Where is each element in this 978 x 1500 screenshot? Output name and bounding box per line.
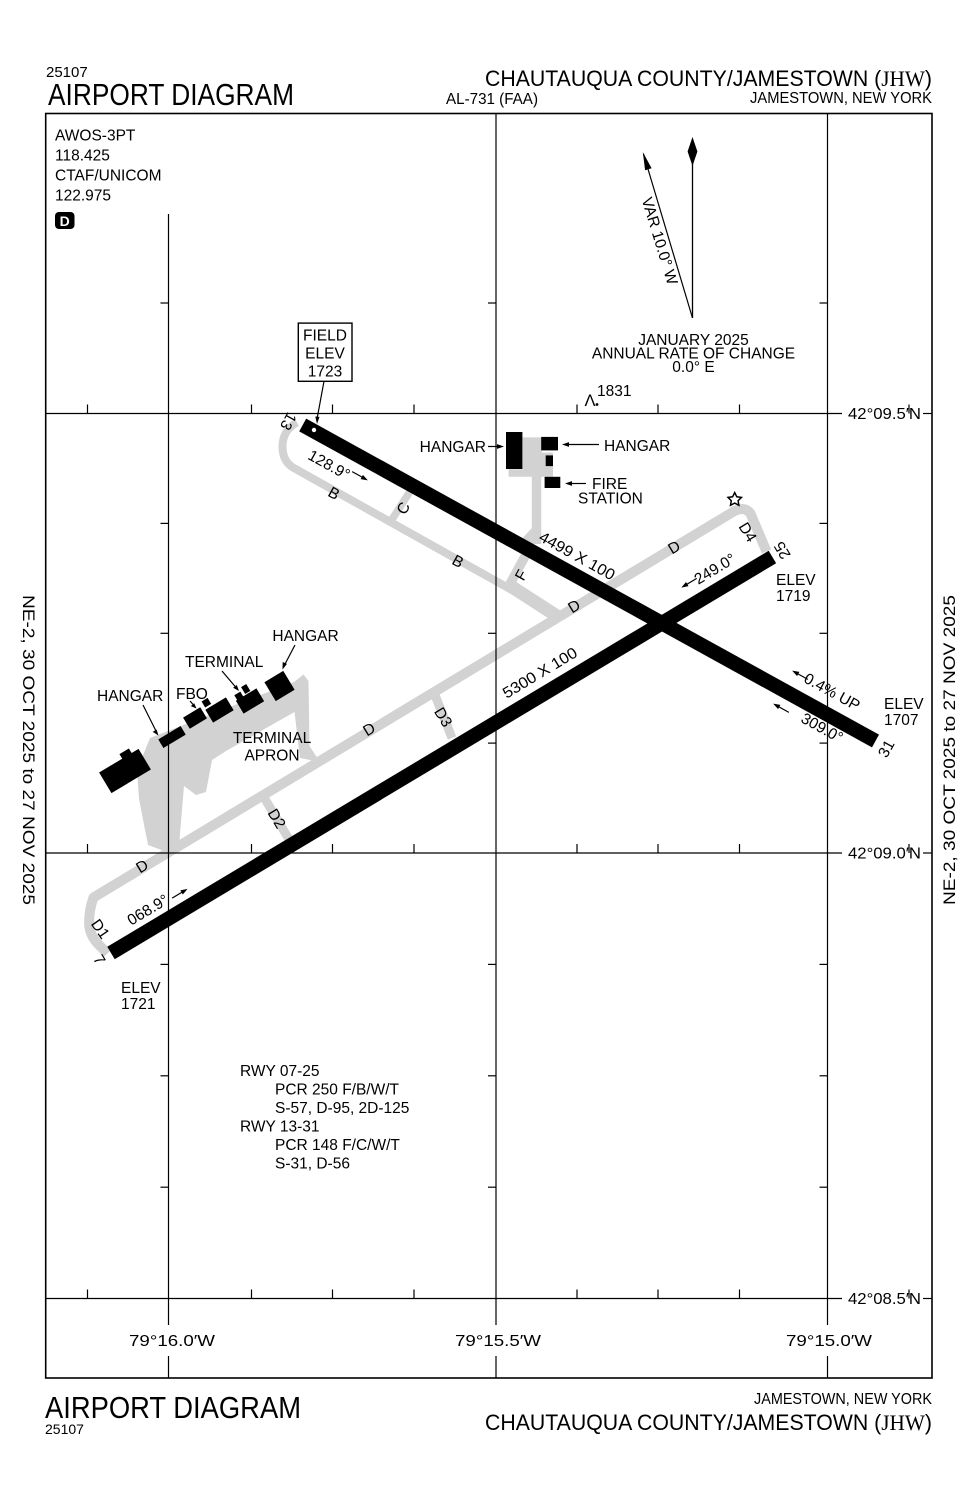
svg-text:CHAUTAUQUA COUNTY/JAMESTOWN (J: CHAUTAUQUA COUNTY/JAMESTOWN (JHW) xyxy=(485,66,932,91)
svg-text:RWY 07-25: RWY 07-25 xyxy=(240,1063,320,1080)
svg-text:VAR 10.0° W: VAR 10.0° W xyxy=(638,195,681,287)
svg-text:HANGAR: HANGAR xyxy=(604,438,670,455)
svg-text:PCR 148 F/C/W/T: PCR 148 F/C/W/T xyxy=(275,1137,400,1154)
svg-text:FIELD: FIELD xyxy=(303,328,347,345)
svg-text:25107: 25107 xyxy=(45,1421,84,1437)
svg-text:79°15.5′W: 79°15.5′W xyxy=(455,1333,541,1350)
svg-text:1707: 1707 xyxy=(884,712,918,729)
svg-text:1723: 1723 xyxy=(308,364,342,381)
svg-text:42°08.5′N: 42°08.5′N xyxy=(848,1291,921,1308)
svg-text:79°15.0′W: 79°15.0′W xyxy=(786,1333,872,1350)
svg-text:HANGAR: HANGAR xyxy=(272,628,338,645)
svg-text:42°09.5′N: 42°09.5′N xyxy=(848,406,921,423)
svg-text:S-31, D-56: S-31, D-56 xyxy=(275,1156,350,1173)
svg-text:FBO: FBO xyxy=(176,686,208,703)
svg-text:AL-731 (FAA): AL-731 (FAA) xyxy=(446,91,538,108)
svg-text:118.425: 118.425 xyxy=(55,148,110,165)
svg-text:79°16.0′W: 79°16.0′W xyxy=(129,1333,215,1350)
svg-text:S-57, D-95, 2D-125: S-57, D-95, 2D-125 xyxy=(275,1100,409,1117)
svg-text:13: 13 xyxy=(276,409,299,432)
svg-text:TERMINAL: TERMINAL xyxy=(185,654,264,671)
svg-text:HANGAR: HANGAR xyxy=(420,439,486,456)
svg-text:AIRPORT DIAGRAM: AIRPORT DIAGRAM xyxy=(45,1390,301,1425)
svg-text:ELEV: ELEV xyxy=(884,696,924,713)
svg-text:RWY 13-31: RWY 13-31 xyxy=(240,1119,320,1136)
svg-text:NE-2, 30 OCT 2025 to 27 NOV: NE-2, 30 OCT 2025 to 27 NOV 2025 xyxy=(19,595,38,905)
svg-text:7: 7 xyxy=(89,952,108,968)
svg-text:AIRPORT DIAGRAM: AIRPORT DIAGRAM xyxy=(48,77,294,112)
svg-text:JAMESTOWN, NEW YORK: JAMESTOWN, NEW YORK xyxy=(754,1391,933,1408)
svg-text:NE-2, 30 OCT 2025 to 27 NOV: NE-2, 30 OCT 2025 to 27 NOV 2025 xyxy=(940,595,959,905)
svg-text:ELEV: ELEV xyxy=(305,346,345,363)
svg-text:1719: 1719 xyxy=(776,588,810,605)
svg-text:25: 25 xyxy=(771,538,794,562)
svg-text:APRON: APRON xyxy=(244,748,299,765)
svg-text:D: D xyxy=(60,213,70,229)
svg-text:TERMINAL: TERMINAL xyxy=(233,730,312,747)
svg-text:31: 31 xyxy=(875,737,898,760)
svg-text:ELEV: ELEV xyxy=(776,572,816,589)
svg-text:STATION: STATION xyxy=(578,491,643,508)
svg-text:AWOS-3PT: AWOS-3PT xyxy=(55,128,136,145)
svg-text:0.0° E: 0.0° E xyxy=(672,359,714,376)
svg-text:1721: 1721 xyxy=(121,996,155,1013)
svg-text:JAMESTOWN, NEW YORK: JAMESTOWN, NEW YORK xyxy=(750,90,933,107)
svg-text:CHAUTAUQUA COUNTY/JAMESTOWN (J: CHAUTAUQUA COUNTY/JAMESTOWN (JHW) xyxy=(485,1410,932,1435)
svg-text:Λ: Λ xyxy=(585,392,596,410)
svg-text:1831: 1831 xyxy=(597,383,631,400)
svg-text:122.975: 122.975 xyxy=(55,188,111,205)
svg-text:CTAF/UNICOM: CTAF/UNICOM xyxy=(55,168,161,185)
svg-text:HANGAR: HANGAR xyxy=(97,688,163,705)
svg-text:42°09.0′N: 42°09.0′N xyxy=(848,846,921,863)
svg-text:ELEV: ELEV xyxy=(121,980,161,997)
svg-text:PCR 250 F/B/W/T: PCR 250 F/B/W/T xyxy=(275,1082,400,1099)
